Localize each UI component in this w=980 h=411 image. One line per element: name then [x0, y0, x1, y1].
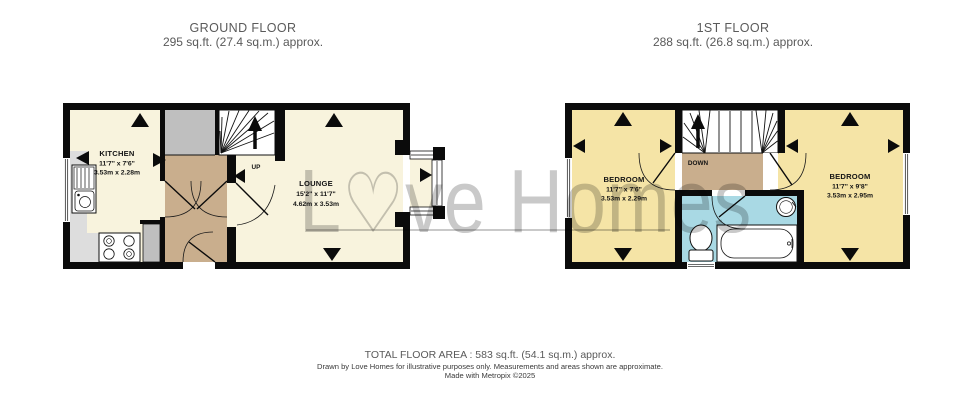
- toilet-icon: [689, 225, 713, 261]
- first-floor-header: 1ST FLOOR 288 sq.ft. (26.8 sq.m.) approx…: [580, 21, 886, 49]
- stairs-up: [219, 110, 275, 155]
- lounge-label: LOUNGE: [299, 179, 333, 188]
- landing-floor: [682, 153, 763, 190]
- bedroom-left-dim-metric: 3.53m x 2.29m: [601, 196, 647, 203]
- stairs-up-label: UP: [252, 164, 262, 171]
- front-door-opening: [183, 262, 215, 269]
- footer: TOTAL FLOOR AREA : 583 sq.ft. (54.1 sq.m…: [0, 348, 980, 380]
- bathroom-door-opening: [712, 190, 745, 196]
- cupboard: [143, 224, 160, 262]
- bedroom-right-label: BEDROOM: [829, 172, 870, 181]
- bedroom-left-dim-imperial: 11'7" x 7'6": [606, 187, 642, 194]
- vestibule-floor: [165, 110, 215, 155]
- bedroom-right-dim-imperial: 11'7" x 9'8": [832, 184, 868, 191]
- first-floor-title: 1ST FLOOR: [580, 21, 886, 35]
- bedroom-right-door-opening: [763, 153, 778, 190]
- ground-floor-title: GROUND FLOOR: [90, 21, 396, 35]
- total-floor-area: TOTAL FLOOR AREA : 583 sq.ft. (54.1 sq.m…: [0, 348, 980, 362]
- bay-opening: [403, 155, 410, 212]
- bedroom-right-dim-metric: 3.53m x 2.95m: [827, 193, 873, 200]
- ground-floor-header: GROUND FLOOR 295 sq.ft. (27.4 sq.m.) app…: [90, 21, 396, 49]
- first-floor-area: 288 sq.ft. (26.8 sq.m.) approx.: [580, 35, 886, 49]
- ground-floor-plan: KITCHEN 11'7" x 7'6" 3.53m x 2.28m LOUNG…: [63, 103, 455, 270]
- bathtub-icon: [717, 225, 797, 262]
- bay-window: [410, 147, 445, 219]
- credit: Made with Metropix ©2025: [0, 371, 980, 380]
- bedroom-right-window: [903, 153, 910, 215]
- hall-floor: [165, 155, 227, 262]
- bedroom-left-label: BEDROOM: [603, 175, 644, 184]
- kitchen-label: KITCHEN: [99, 149, 134, 158]
- ground-floor-area: 295 sq.ft. (27.4 sq.m.) approx.: [90, 35, 396, 49]
- stairs-down-label: DOWN: [688, 160, 709, 167]
- bedroom-left-door-opening: [675, 153, 682, 190]
- lounge-dim-metric: 4.62m x 3.53m: [293, 201, 339, 208]
- sink-icon: [72, 165, 96, 213]
- stairs-down: [682, 110, 778, 153]
- bathroom-window: [687, 262, 715, 269]
- kitchen-window: [63, 158, 70, 222]
- kitchen-dim-metric: 3.53m x 2.28m: [94, 170, 140, 177]
- first-floor-plan: BEDROOM 11'7" x 7'6" 3.53m x 2.29m BEDRO…: [565, 103, 918, 270]
- lounge-dim-imperial: 15'2" x 11'7": [296, 191, 336, 198]
- disclaimer: Drawn by Love Homes for illustrative pur…: [0, 362, 980, 371]
- stove-icon: [99, 233, 140, 262]
- basin-icon: [777, 198, 797, 217]
- bedroom-left-window: [565, 158, 572, 218]
- floorplan-page: GROUND FLOOR 295 sq.ft. (27.4 sq.m.) app…: [0, 0, 980, 411]
- kitchen-dim-imperial: 11'7" x 7'6": [99, 161, 135, 168]
